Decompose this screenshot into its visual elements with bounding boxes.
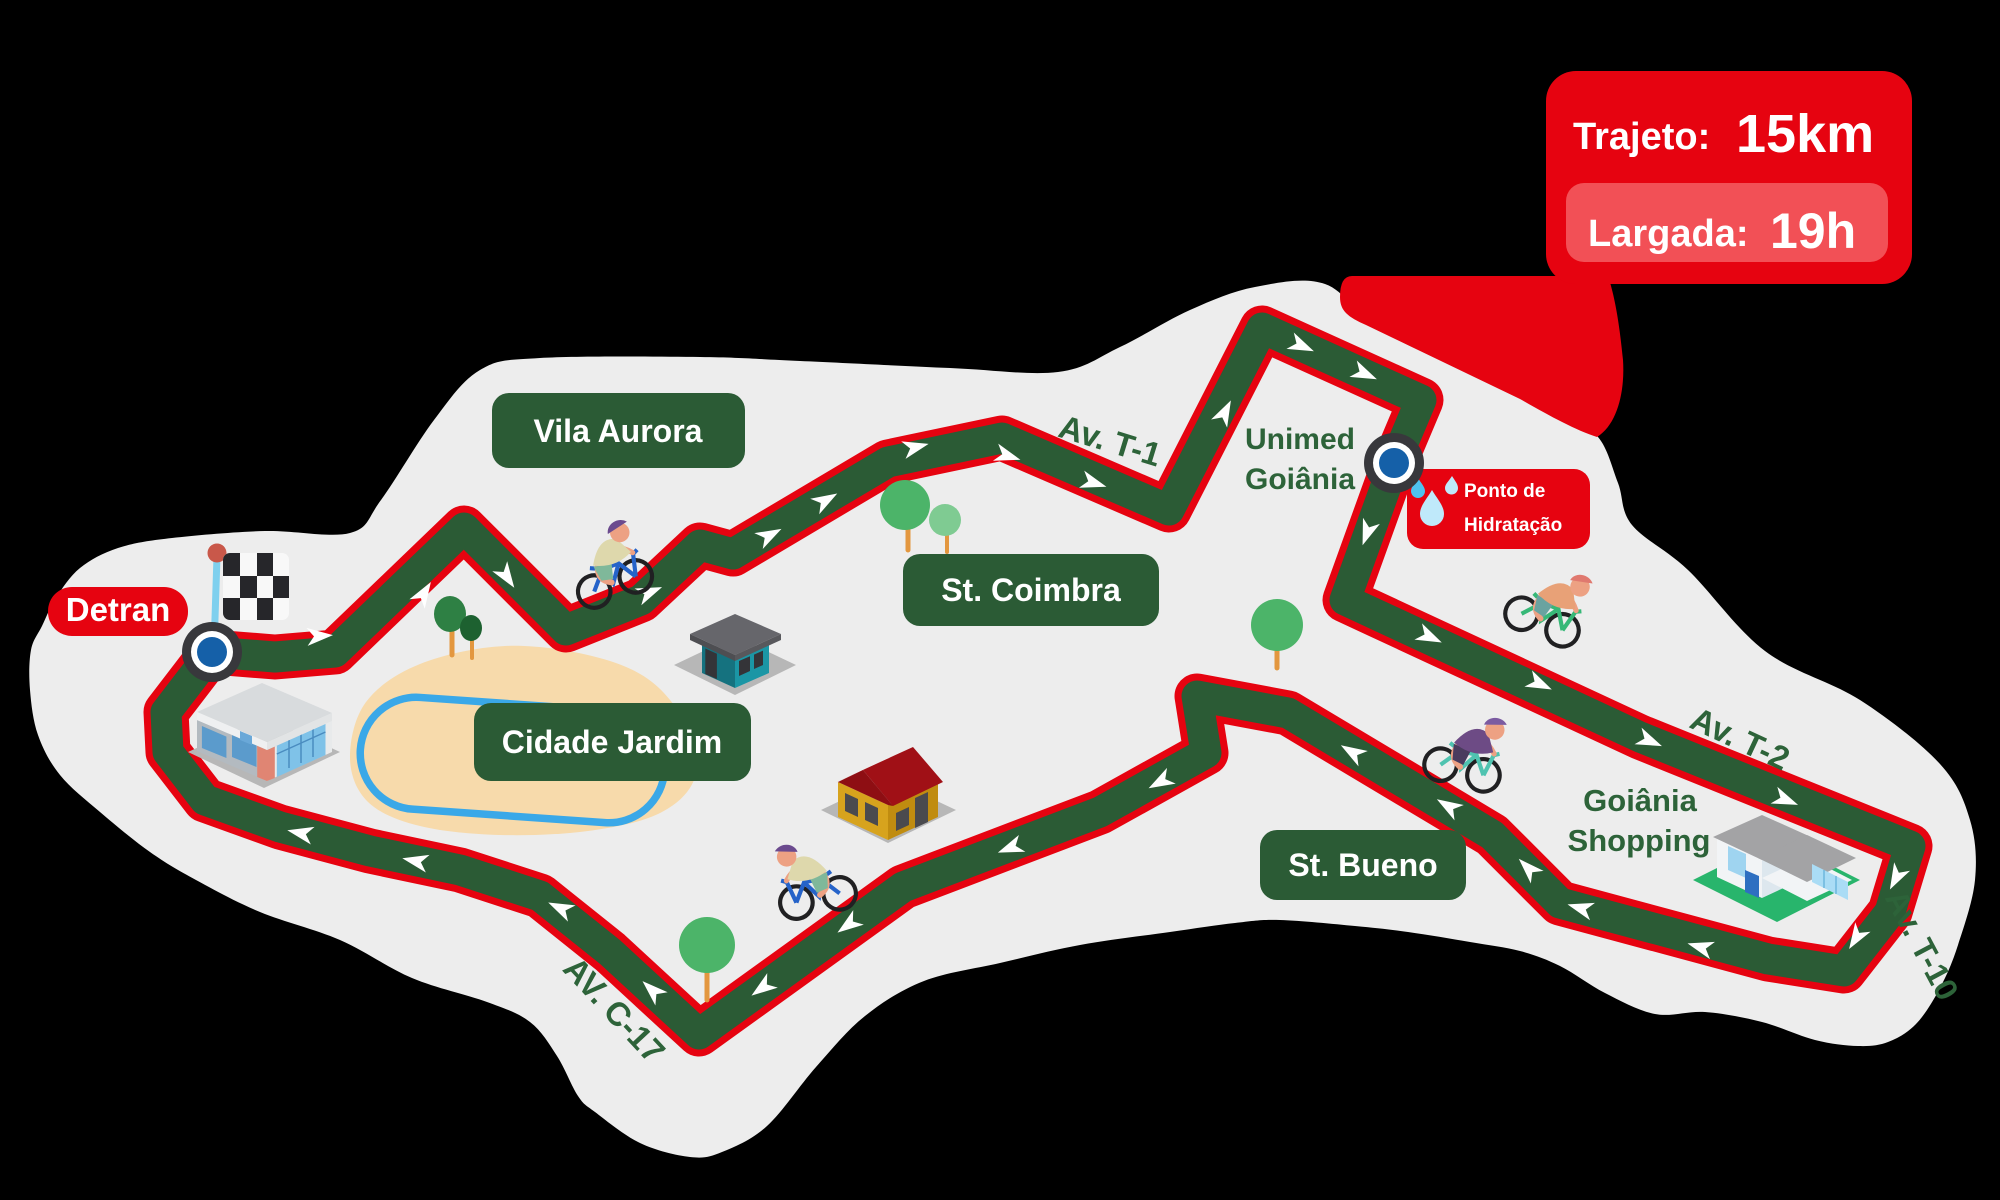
svg-text:St. Coimbra: St. Coimbra (941, 572, 1121, 608)
svg-text:Ponto de: Ponto de (1464, 481, 1545, 502)
svg-text:Trajeto:: Trajeto: (1573, 116, 1710, 158)
svg-text:Goiânia: Goiânia (1583, 783, 1697, 818)
svg-text:St. Bueno: St. Bueno (1288, 847, 1437, 883)
svg-text:Cidade Jardim: Cidade Jardim (502, 724, 723, 760)
svg-text:15km: 15km (1736, 104, 1874, 164)
svg-text:Detran: Detran (66, 591, 171, 628)
svg-text:Vila Aurora: Vila Aurora (534, 413, 703, 449)
svg-text:Hidratação: Hidratação (1464, 515, 1562, 536)
svg-text:Unimed: Unimed (1245, 423, 1355, 456)
svg-text:Shopping: Shopping (1568, 823, 1711, 858)
svg-text:Goiânia: Goiânia (1245, 463, 1355, 496)
svg-text:Largada:: Largada: (1588, 213, 1748, 255)
svg-text:19h: 19h (1770, 203, 1856, 259)
